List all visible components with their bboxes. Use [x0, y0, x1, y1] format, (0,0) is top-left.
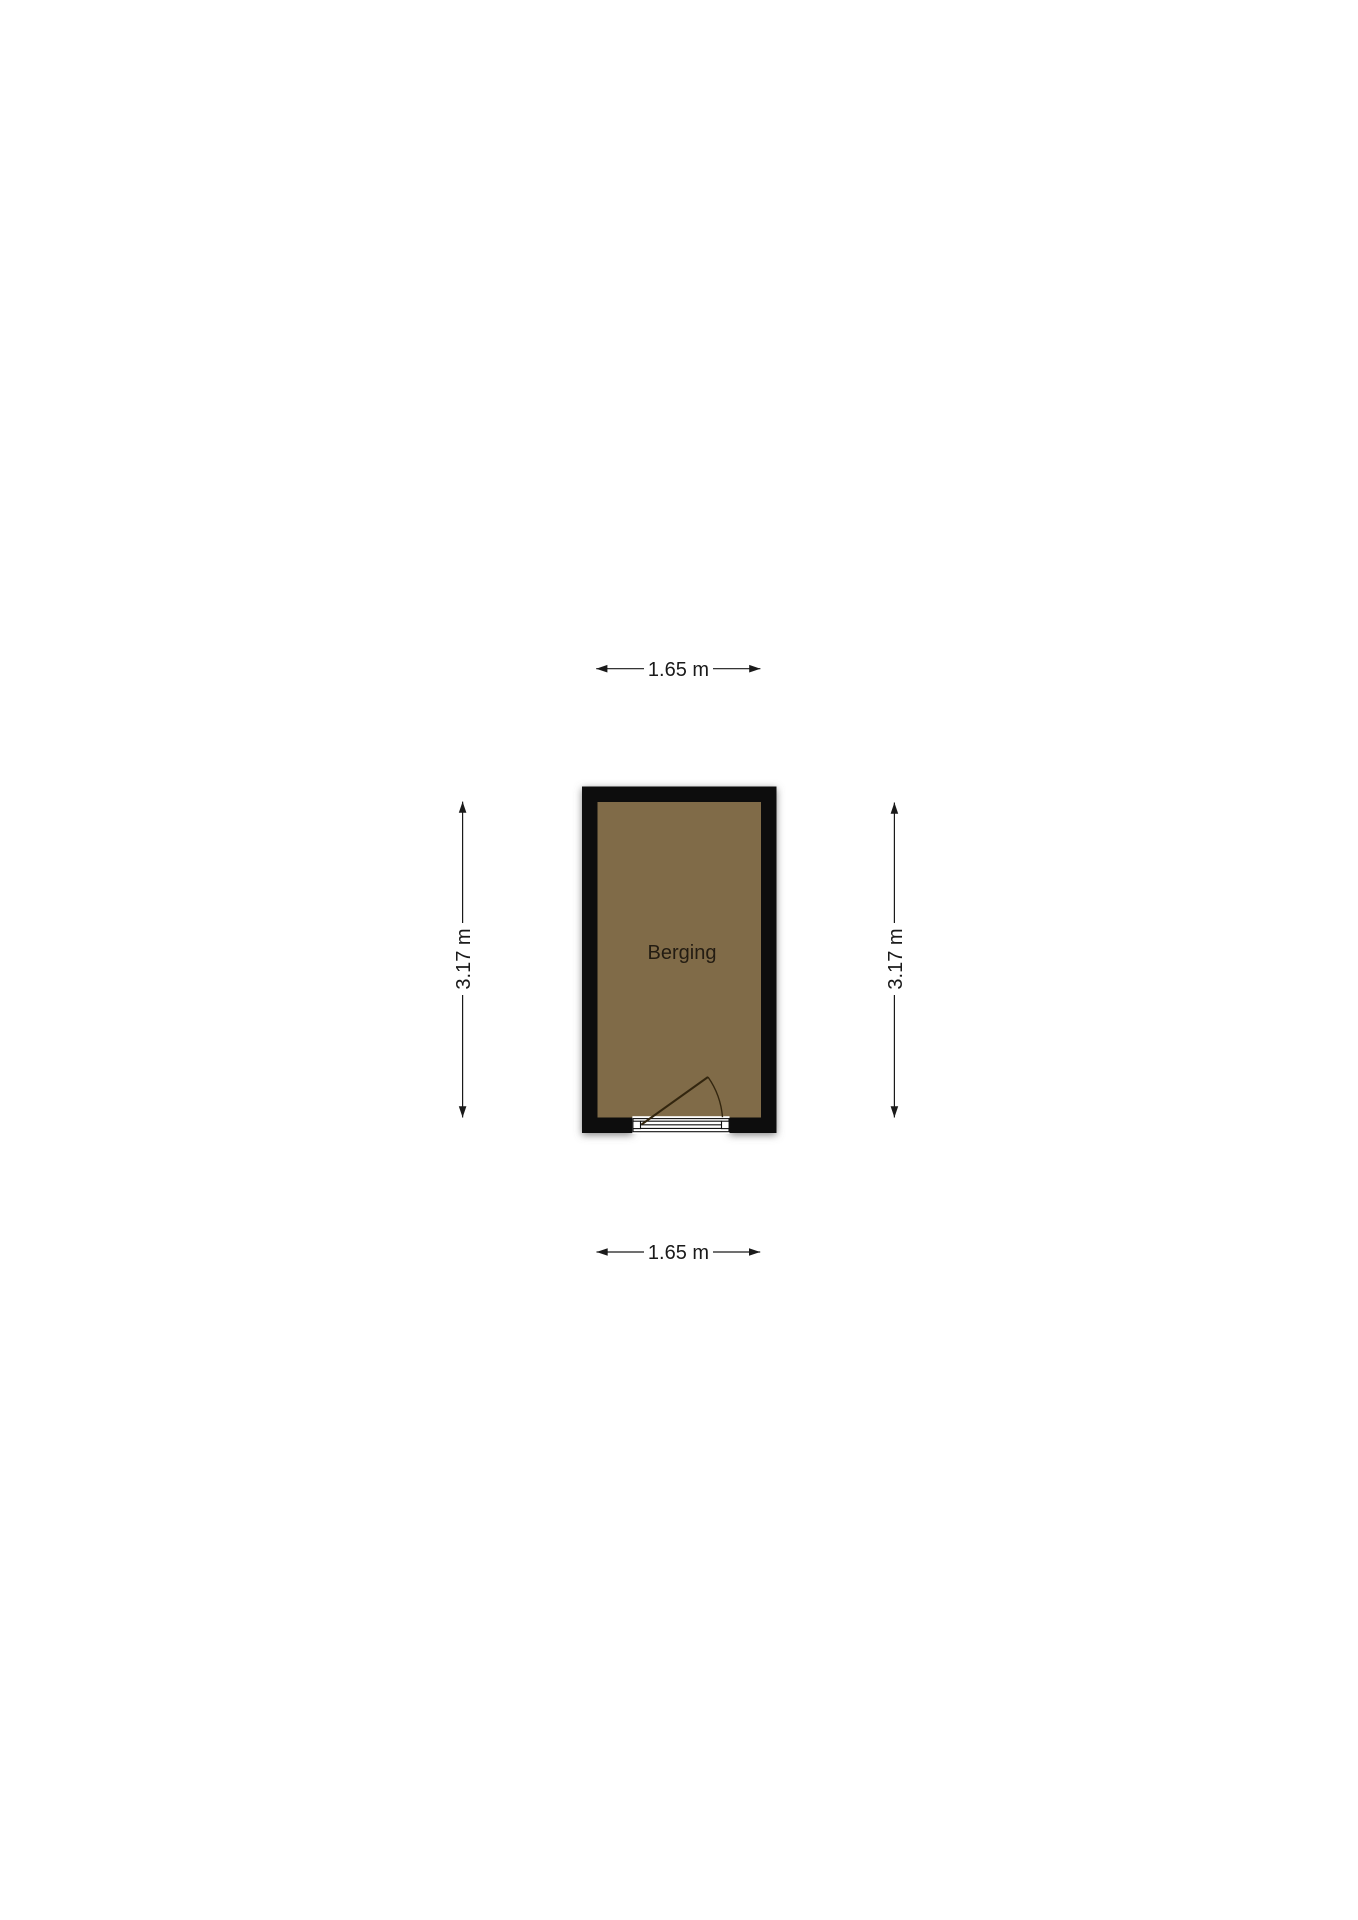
svg-text:1.65 m: 1.65 m: [648, 659, 709, 681]
svg-text:3.17 m: 3.17 m: [885, 928, 907, 989]
svg-text:Berging: Berging: [648, 942, 717, 964]
svg-text:1.65 m: 1.65 m: [648, 1242, 709, 1264]
svg-text:3.17 m: 3.17 m: [453, 928, 475, 989]
